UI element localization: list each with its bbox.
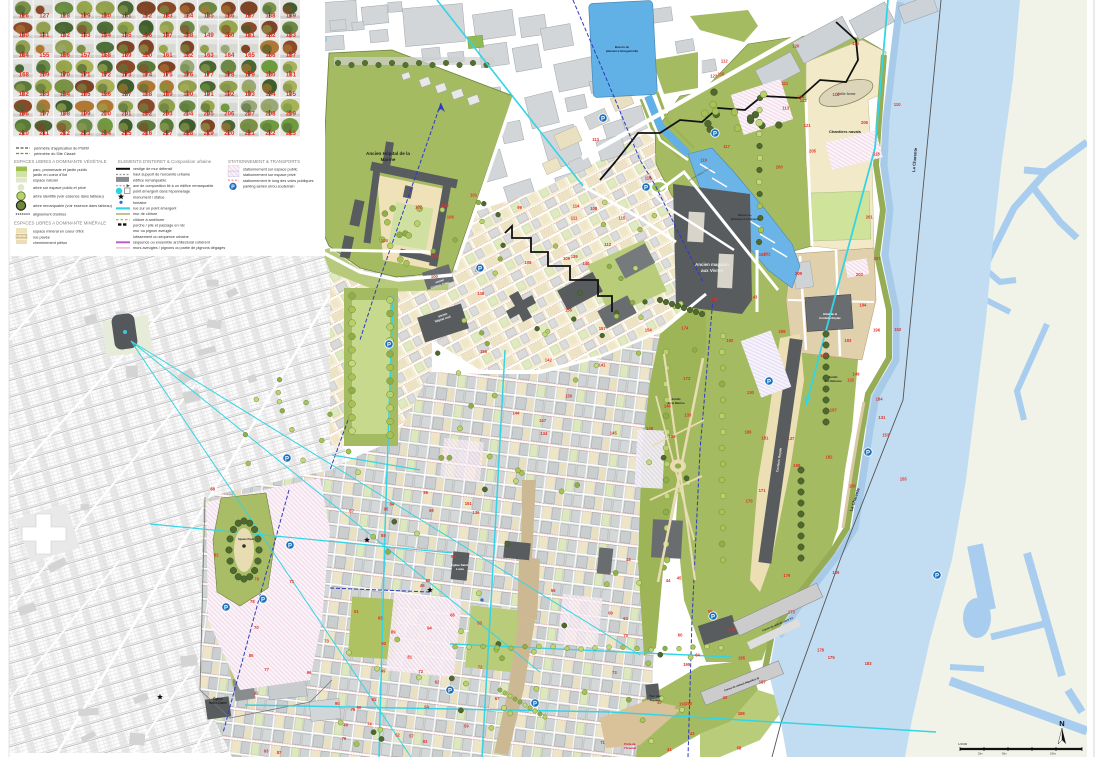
svg-text:51: 51 xyxy=(354,609,359,614)
svg-text:145: 145 xyxy=(610,430,618,435)
svg-text:46: 46 xyxy=(420,583,425,588)
svg-text:217: 217 xyxy=(163,131,174,137)
svg-text:153: 153 xyxy=(286,33,297,39)
svg-text:88: 88 xyxy=(381,533,386,538)
svg-text:133: 133 xyxy=(163,14,174,20)
svg-text:212: 212 xyxy=(60,131,71,137)
svg-text:100: 100 xyxy=(431,274,439,279)
svg-text:130: 130 xyxy=(101,14,112,20)
svg-text:206: 206 xyxy=(861,120,869,125)
svg-text:148: 148 xyxy=(646,426,654,431)
svg-text:147: 147 xyxy=(539,418,547,423)
svg-text:P: P xyxy=(231,184,235,190)
svg-text:185: 185 xyxy=(80,92,91,98)
svg-text:71: 71 xyxy=(289,579,294,584)
svg-text:197: 197 xyxy=(830,407,838,412)
svg-text:112: 112 xyxy=(604,242,611,247)
svg-text:192: 192 xyxy=(726,338,734,343)
svg-text:68: 68 xyxy=(210,486,215,491)
svg-text:P: P xyxy=(767,379,771,385)
svg-text:P: P xyxy=(711,614,715,620)
svg-text:146: 146 xyxy=(142,33,153,39)
svg-text:151: 151 xyxy=(465,501,473,506)
svg-text:218: 218 xyxy=(183,131,194,137)
svg-text:163: 163 xyxy=(204,53,215,59)
svg-text:216: 216 xyxy=(142,131,153,137)
svg-text:139: 139 xyxy=(571,254,579,259)
svg-text:58: 58 xyxy=(737,746,742,751)
svg-text:83: 83 xyxy=(423,739,428,744)
svg-text:aux Vivres: aux Vivres xyxy=(701,268,723,273)
svg-text:154: 154 xyxy=(19,53,30,59)
svg-text:178: 178 xyxy=(224,72,235,78)
svg-text:56: 56 xyxy=(551,588,556,593)
svg-text:64: 64 xyxy=(695,653,700,658)
svg-text:211: 211 xyxy=(39,131,49,137)
svg-text:195: 195 xyxy=(286,92,297,98)
svg-text:220: 220 xyxy=(224,131,235,137)
svg-text:183: 183 xyxy=(865,661,873,666)
svg-text:143: 143 xyxy=(750,295,758,300)
svg-text:168: 168 xyxy=(19,72,30,78)
svg-text:186: 186 xyxy=(101,92,112,98)
svg-text:156: 156 xyxy=(480,349,488,354)
svg-text:66: 66 xyxy=(307,670,312,675)
svg-text:199: 199 xyxy=(80,112,91,118)
svg-text:180: 180 xyxy=(265,72,276,78)
svg-text:périmètre du Site Classé: périmètre du Site Classé xyxy=(34,152,76,156)
svg-text:181: 181 xyxy=(286,72,297,78)
svg-text:100m: 100m xyxy=(1050,753,1056,756)
svg-text:131: 131 xyxy=(122,14,133,20)
svg-text:rue sur un point émergent: rue sur un point émergent xyxy=(133,207,177,211)
svg-text:194: 194 xyxy=(265,92,276,98)
svg-text:197: 197 xyxy=(39,112,50,118)
svg-text:175: 175 xyxy=(163,72,174,78)
svg-text:P: P xyxy=(713,131,717,137)
svg-text:191: 191 xyxy=(679,701,687,706)
svg-text:112: 112 xyxy=(721,59,728,64)
svg-text:63: 63 xyxy=(623,616,628,621)
svg-text:44: 44 xyxy=(666,578,671,583)
svg-text:166: 166 xyxy=(265,53,276,59)
svg-text:monument / statue: monument / statue xyxy=(133,195,164,199)
svg-text:167: 167 xyxy=(286,53,297,59)
svg-text:1/2000: 1/2000 xyxy=(958,742,968,746)
svg-text:P: P xyxy=(288,543,292,549)
svg-text:140: 140 xyxy=(19,33,30,39)
svg-text:point émergent dans l'épannela: point émergent dans l'épannelage xyxy=(133,190,190,194)
svg-text:81: 81 xyxy=(407,655,412,660)
svg-text:128: 128 xyxy=(60,14,71,20)
svg-text:201: 201 xyxy=(122,112,133,118)
svg-text:132: 132 xyxy=(142,14,153,20)
svg-text:173: 173 xyxy=(122,72,133,78)
svg-text:183: 183 xyxy=(39,92,50,98)
svg-text:50: 50 xyxy=(357,705,362,710)
svg-text:70: 70 xyxy=(254,625,259,630)
svg-text:STATIONNEMENT & TRANSPORTS: STATIONNEMENT & TRANSPORTS xyxy=(228,159,300,164)
svg-text:Louis: Louis xyxy=(456,567,464,571)
svg-text:53: 53 xyxy=(477,620,482,625)
svg-text:210: 210 xyxy=(19,131,30,137)
svg-text:plaisance Bougainville: plaisance Bougainville xyxy=(606,49,639,53)
svg-text:108: 108 xyxy=(525,260,533,265)
svg-text:158: 158 xyxy=(101,53,112,59)
svg-text:151: 151 xyxy=(245,33,256,39)
svg-text:136: 136 xyxy=(224,14,235,20)
svg-text:48: 48 xyxy=(626,557,631,562)
svg-text:113: 113 xyxy=(782,105,789,110)
svg-text:76: 76 xyxy=(342,736,347,741)
svg-text:rue pavée: rue pavée xyxy=(33,235,50,239)
svg-text:Notre-Dame: Notre-Dame xyxy=(209,701,227,705)
svg-text:113: 113 xyxy=(592,137,599,142)
svg-text:114: 114 xyxy=(573,203,580,208)
svg-text:147: 147 xyxy=(163,33,174,39)
svg-text:69: 69 xyxy=(429,508,434,513)
svg-text:205: 205 xyxy=(809,148,817,153)
svg-text:de la Marine: de la Marine xyxy=(667,401,685,405)
svg-text:154: 154 xyxy=(645,328,653,333)
svg-text:137: 137 xyxy=(245,14,256,20)
svg-text:137: 137 xyxy=(787,436,795,441)
svg-text:Vieille forme: Vieille forme xyxy=(837,92,856,96)
svg-text:132: 132 xyxy=(847,378,855,383)
svg-text:189: 189 xyxy=(832,570,840,575)
svg-text:142: 142 xyxy=(60,33,71,39)
svg-text:P: P xyxy=(478,266,482,272)
svg-text:91: 91 xyxy=(254,691,259,696)
svg-text:murs aveugles / pignons ou par: murs aveugles / pignons ou partie de pig… xyxy=(133,246,225,250)
svg-text:174: 174 xyxy=(681,325,689,330)
svg-text:P: P xyxy=(935,573,939,579)
svg-text:72: 72 xyxy=(418,669,423,674)
svg-text:P: P xyxy=(387,342,391,348)
svg-text:162: 162 xyxy=(183,53,194,59)
svg-text:90: 90 xyxy=(335,701,340,706)
svg-text:des Retours: des Retours xyxy=(824,379,842,383)
svg-text:196: 196 xyxy=(873,327,881,332)
svg-text:52: 52 xyxy=(395,733,400,738)
svg-text:138: 138 xyxy=(477,291,485,296)
svg-text:espace minéral en coeur d'îlot: espace minéral en coeur d'îlot xyxy=(33,229,84,233)
svg-text:94: 94 xyxy=(427,626,432,631)
svg-text:95: 95 xyxy=(384,506,389,511)
svg-text:59: 59 xyxy=(464,724,469,729)
svg-text:P: P xyxy=(285,456,289,462)
svg-text:67: 67 xyxy=(495,696,500,701)
svg-text:133: 133 xyxy=(684,413,692,418)
svg-text:198: 198 xyxy=(793,463,801,468)
svg-text:stationnement le long des voie: stationnement le long des voies publique… xyxy=(243,179,314,183)
svg-text:arbre remarquable (voir essenc: arbre remarquable (voir essence dans tab… xyxy=(33,204,113,208)
svg-text:jardin en coeur d'îlot: jardin en coeur d'îlot xyxy=(32,173,68,177)
svg-text:50m: 50m xyxy=(1002,753,1007,756)
svg-text:57: 57 xyxy=(409,734,414,739)
svg-text:185: 185 xyxy=(738,656,746,661)
svg-text:202: 202 xyxy=(142,112,153,118)
svg-text:141: 141 xyxy=(39,33,50,39)
svg-text:cheminement piéton: cheminement piéton xyxy=(33,241,67,245)
svg-text:178: 178 xyxy=(817,648,825,653)
svg-text:222: 222 xyxy=(265,131,276,137)
svg-text:152: 152 xyxy=(265,33,276,39)
svg-text:209: 209 xyxy=(795,271,803,276)
svg-text:215: 215 xyxy=(122,131,133,137)
svg-text:148: 148 xyxy=(183,33,194,39)
svg-text:105: 105 xyxy=(432,253,440,258)
svg-text:176: 176 xyxy=(183,72,194,78)
svg-text:159: 159 xyxy=(820,353,828,358)
svg-text:108: 108 xyxy=(590,206,598,211)
svg-text:49: 49 xyxy=(381,668,386,673)
svg-text:144: 144 xyxy=(512,411,520,416)
svg-text:143: 143 xyxy=(80,33,91,39)
svg-text:123: 123 xyxy=(710,73,718,78)
svg-text:213: 213 xyxy=(80,131,91,137)
svg-text:195: 195 xyxy=(683,662,691,667)
svg-text:193: 193 xyxy=(245,92,256,98)
svg-text:104: 104 xyxy=(381,238,389,243)
svg-text:arbre identifié (voir essence: arbre identifié (voir essence dans table… xyxy=(33,195,104,199)
svg-text:102: 102 xyxy=(415,204,423,209)
svg-text:vestige de mur défensif: vestige de mur défensif xyxy=(133,167,173,171)
svg-text:mur de clôture: mur de clôture xyxy=(133,212,157,216)
svg-text:70: 70 xyxy=(623,633,628,638)
svg-text:184: 184 xyxy=(60,92,71,98)
svg-text:145: 145 xyxy=(122,33,133,39)
svg-text:110: 110 xyxy=(645,176,652,181)
svg-text:arbre sur espace public et pri: arbre sur espace public et privé xyxy=(33,186,86,190)
svg-text:134: 134 xyxy=(540,431,548,436)
svg-text:139: 139 xyxy=(286,14,297,20)
svg-text:175: 175 xyxy=(828,655,836,660)
svg-text:172: 172 xyxy=(101,72,112,78)
svg-text:P: P xyxy=(224,605,228,611)
svg-text:99: 99 xyxy=(517,205,522,210)
svg-text:190: 190 xyxy=(183,92,194,98)
svg-text:73: 73 xyxy=(324,639,329,644)
svg-text:201: 201 xyxy=(866,215,874,220)
svg-text:73: 73 xyxy=(612,670,617,675)
svg-text:142: 142 xyxy=(545,357,553,362)
svg-text:60: 60 xyxy=(678,632,683,637)
svg-text:157: 157 xyxy=(599,326,607,331)
svg-text:221: 221 xyxy=(245,131,256,137)
svg-text:170: 170 xyxy=(746,499,754,504)
svg-text:74: 74 xyxy=(367,721,372,726)
svg-text:160: 160 xyxy=(142,53,153,59)
svg-text:158: 158 xyxy=(759,252,767,257)
svg-text:25m: 25m xyxy=(978,753,983,756)
svg-text:75: 75 xyxy=(351,707,356,712)
svg-text:129: 129 xyxy=(80,14,91,20)
svg-text:219: 219 xyxy=(204,131,215,137)
svg-text:115: 115 xyxy=(852,41,859,46)
svg-text:P: P xyxy=(261,597,265,603)
svg-text:40: 40 xyxy=(343,722,348,727)
svg-text:axe de composition lié à un éd: axe de composition lié à un édifice rema… xyxy=(133,184,213,188)
svg-text:ESPACES LIBRES A DOMINANTE MIN: ESPACES LIBRES A DOMINANTE MINÉRALE xyxy=(14,221,106,226)
svg-text:203: 203 xyxy=(856,272,864,277)
svg-text:P: P xyxy=(448,688,452,694)
svg-text:126: 126 xyxy=(19,14,30,20)
svg-text:150: 150 xyxy=(224,33,235,39)
svg-text:184: 184 xyxy=(876,396,884,401)
svg-text:P: P xyxy=(533,701,537,707)
svg-text:Square Parat: Square Parat xyxy=(238,537,254,541)
svg-text:204: 204 xyxy=(797,95,805,100)
svg-text:199: 199 xyxy=(669,434,677,439)
svg-text:89: 89 xyxy=(391,630,396,635)
svg-text:186: 186 xyxy=(745,430,753,435)
svg-text:61: 61 xyxy=(372,697,377,702)
svg-text:115: 115 xyxy=(619,216,626,221)
svg-text:136: 136 xyxy=(473,510,481,515)
svg-text:116: 116 xyxy=(718,71,725,76)
svg-text:121: 121 xyxy=(804,123,812,128)
svg-text:155: 155 xyxy=(900,476,908,481)
svg-text:Signaux: Signaux xyxy=(650,698,661,702)
svg-text:périmètre d'application du PSM: périmètre d'application du PSMV xyxy=(34,147,90,151)
svg-text:118: 118 xyxy=(873,152,880,157)
svg-text:205: 205 xyxy=(204,112,215,118)
svg-text:134: 134 xyxy=(183,14,194,20)
svg-text:120: 120 xyxy=(792,44,800,49)
svg-text:101: 101 xyxy=(470,193,478,198)
svg-text:193: 193 xyxy=(844,338,852,343)
svg-text:169: 169 xyxy=(39,72,50,78)
svg-text:ESPACES LIBRES A DOMINANTE VÉG: ESPACES LIBRES A DOMINANTE VÉGÉTALE xyxy=(14,159,107,164)
svg-text:82: 82 xyxy=(214,552,219,557)
svg-text:196: 196 xyxy=(19,112,30,118)
svg-text:182: 182 xyxy=(826,454,834,459)
svg-text:181: 181 xyxy=(761,436,769,441)
svg-text:45: 45 xyxy=(677,576,682,581)
svg-text:179: 179 xyxy=(783,573,791,578)
svg-text:164: 164 xyxy=(224,53,235,59)
svg-text:170: 170 xyxy=(60,72,71,78)
svg-text:parc, promenade et jardin publ: parc, promenade et jardin public xyxy=(33,168,87,172)
svg-text:187: 187 xyxy=(122,92,133,98)
svg-text:69: 69 xyxy=(608,610,613,615)
svg-text:149: 149 xyxy=(204,33,215,39)
svg-text:149: 149 xyxy=(853,372,861,377)
svg-text:séquence ou ensemble architect: séquence ou ensemble architectural cohér… xyxy=(133,241,211,245)
svg-text:153: 153 xyxy=(882,432,890,437)
svg-text:Chantiers navals: Chantiers navals xyxy=(829,129,862,134)
svg-text:191: 191 xyxy=(204,92,215,98)
svg-text:103: 103 xyxy=(442,203,450,208)
svg-text:92: 92 xyxy=(381,641,386,646)
svg-text:l'Arsenal: l'Arsenal xyxy=(624,746,636,750)
svg-text:173: 173 xyxy=(788,609,796,614)
svg-text:131: 131 xyxy=(878,415,886,420)
svg-text:177: 177 xyxy=(711,297,719,302)
svg-text:parking aérien et/ou souterrai: parking aérien et/ou souterrain xyxy=(243,185,295,189)
svg-text:haut support de l'enceinte urb: haut support de l'enceinte urbaine xyxy=(133,173,190,177)
svg-text:187: 187 xyxy=(759,680,767,685)
svg-text:194: 194 xyxy=(859,302,867,307)
svg-text:214: 214 xyxy=(101,131,112,137)
svg-text:édifice remarquable: édifice remarquable xyxy=(133,178,166,182)
svg-text:135: 135 xyxy=(204,14,215,20)
svg-text:171: 171 xyxy=(759,488,767,493)
svg-text:141: 141 xyxy=(599,362,607,367)
svg-text:190: 190 xyxy=(685,701,693,706)
svg-text:209: 209 xyxy=(286,112,297,118)
svg-text:200: 200 xyxy=(101,112,112,118)
svg-text:78: 78 xyxy=(250,599,255,604)
svg-text:mur ou pignon aveugle: mur ou pignon aveugle xyxy=(133,229,172,233)
svg-text:117: 117 xyxy=(723,144,730,149)
svg-text:stationnement sur espace publi: stationnement sur espace public xyxy=(243,168,298,172)
svg-text:203: 203 xyxy=(163,112,174,118)
svg-text:200: 200 xyxy=(776,164,784,169)
svg-text:plaisance La Pérouse: plaisance La Pérouse xyxy=(731,217,760,221)
svg-text:156: 156 xyxy=(60,53,71,59)
svg-text:165: 165 xyxy=(245,53,256,59)
svg-text:77: 77 xyxy=(264,667,269,672)
svg-text:86: 86 xyxy=(423,490,428,495)
svg-text:177: 177 xyxy=(204,72,215,78)
svg-text:127: 127 xyxy=(39,14,50,20)
svg-text:stationnement sur espace privé: stationnement sur espace privé xyxy=(243,173,296,177)
svg-text:79: 79 xyxy=(254,577,259,582)
svg-text:152: 152 xyxy=(894,327,902,332)
svg-text:106: 106 xyxy=(447,214,455,219)
svg-text:192: 192 xyxy=(224,92,235,98)
svg-text:84: 84 xyxy=(390,501,395,506)
svg-text:porche / pile et passage en rd: porche / pile et passage en rdc xyxy=(133,224,185,228)
svg-text:P: P xyxy=(601,116,605,122)
svg-text:207: 207 xyxy=(245,112,256,118)
svg-text:204: 204 xyxy=(183,112,194,118)
svg-text:62: 62 xyxy=(435,680,440,685)
svg-text:208: 208 xyxy=(779,329,787,334)
svg-text:172: 172 xyxy=(683,376,691,381)
svg-text:Ancien Hôpital de la: Ancien Hôpital de la xyxy=(366,151,410,156)
svg-text:174: 174 xyxy=(142,72,153,78)
svg-text:182: 182 xyxy=(19,92,30,98)
svg-text:43: 43 xyxy=(690,731,695,736)
svg-text:71: 71 xyxy=(600,740,605,745)
svg-text:161: 161 xyxy=(163,53,174,59)
svg-text:clôture à améliorer: clôture à améliorer xyxy=(133,218,165,222)
svg-text:87: 87 xyxy=(277,750,282,755)
svg-text:135: 135 xyxy=(565,307,573,312)
svg-text:114: 114 xyxy=(833,92,840,97)
svg-text:111: 111 xyxy=(571,216,578,221)
svg-text:Corderie Royale: Corderie Royale xyxy=(819,316,841,320)
svg-text:189: 189 xyxy=(163,92,174,98)
svg-text:41: 41 xyxy=(667,747,672,752)
svg-text:223: 223 xyxy=(286,131,297,137)
svg-text:85: 85 xyxy=(249,653,254,658)
svg-text:109: 109 xyxy=(563,256,571,261)
svg-text:ELEMENTS D'INTERET & Compositi: ELEMENTS D'INTERET & Composition urbaine xyxy=(118,159,212,164)
svg-text:Ancien magasin: Ancien magasin xyxy=(695,262,729,267)
svg-text:N: N xyxy=(1059,719,1064,728)
svg-text:espace naturel: espace naturel xyxy=(33,179,58,183)
svg-text:140: 140 xyxy=(583,261,591,266)
svg-text:176: 176 xyxy=(728,627,736,632)
svg-text:Marine: Marine xyxy=(381,157,396,162)
svg-text:P: P xyxy=(866,450,870,456)
svg-text:207: 207 xyxy=(874,256,882,261)
svg-text:208: 208 xyxy=(265,112,276,118)
